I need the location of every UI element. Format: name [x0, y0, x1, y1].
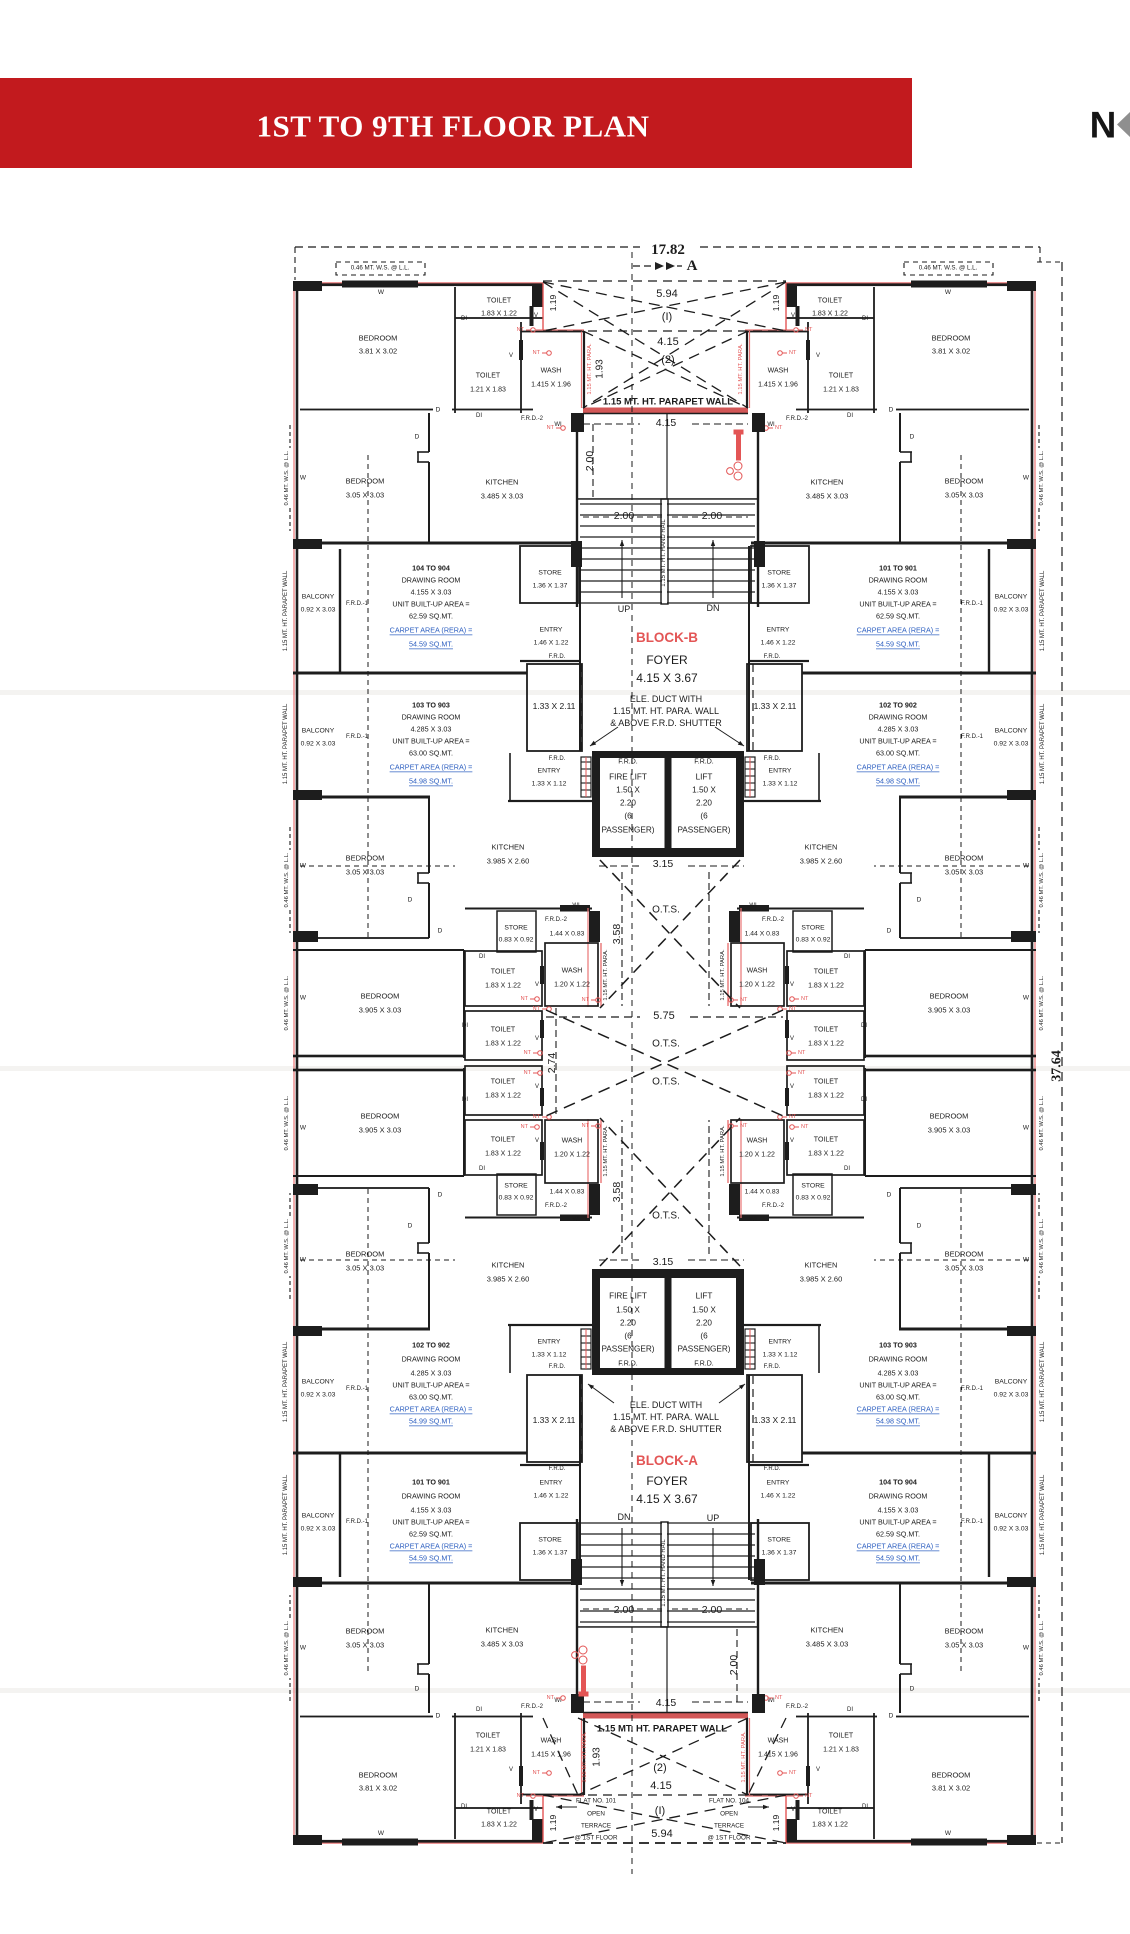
svg-text:4.15: 4.15	[656, 1697, 677, 1709]
svg-text:ELE. DUCT WITH: ELE. DUCT WITH	[630, 1400, 702, 1410]
svg-text:(I): (I)	[655, 1805, 665, 1817]
svg-text:UNIT BUILT-UP AREA =: UNIT BUILT-UP AREA =	[859, 600, 936, 609]
svg-text:1.20 X 1.22: 1.20 X 1.22	[554, 1152, 590, 1159]
svg-text:W: W	[1023, 1645, 1030, 1652]
svg-text:1.83 X 1.22: 1.83 X 1.22	[808, 1151, 844, 1158]
svg-text:1.15 MT. HT. PARA.: 1.15 MT. HT. PARA.	[587, 343, 593, 395]
svg-text:1.36 X 1.37: 1.36 X 1.37	[533, 1550, 568, 1557]
svg-text:1.33 X 2.11: 1.33 X 2.11	[533, 1415, 576, 1425]
svg-text:4.15 X 3.67: 4.15 X 3.67	[636, 1492, 698, 1506]
svg-text:1.33 X 1.12: 1.33 X 1.12	[763, 1352, 798, 1359]
svg-text:17.82: 17.82	[651, 242, 685, 258]
svg-text:BEDROOM: BEDROOM	[346, 854, 385, 863]
svg-text:2.00: 2.00	[614, 510, 635, 522]
svg-text:F.R.D.: F.R.D.	[764, 1364, 781, 1370]
svg-text:0.46 MT. W.S. @ L.L.: 0.46 MT. W.S. @ L.L.	[1039, 1620, 1045, 1675]
svg-text:F.R.D.-2: F.R.D.-2	[521, 1704, 544, 1710]
svg-text:TOILET: TOILET	[814, 969, 839, 976]
svg-text:WASH: WASH	[747, 968, 768, 975]
svg-text:2.00: 2.00	[728, 1655, 740, 1676]
svg-text:1.83 X 1.22: 1.83 X 1.22	[812, 1822, 848, 1829]
svg-text:D: D	[415, 434, 420, 441]
svg-text:FOYER: FOYER	[646, 653, 688, 667]
svg-text:63.00 SQ.MT.: 63.00 SQ.MT.	[409, 749, 453, 758]
svg-text:F.R.D.-1: F.R.D.-1	[961, 1386, 984, 1392]
svg-text:4.285 X 3.03: 4.285 X 3.03	[411, 725, 452, 734]
svg-text:STORE: STORE	[538, 1537, 562, 1544]
svg-text:TOILET: TOILET	[814, 1137, 839, 1144]
svg-text:1.93: 1.93	[595, 359, 606, 379]
svg-text:ENTRY: ENTRY	[767, 627, 790, 634]
svg-text:V: V	[534, 313, 538, 319]
svg-text:ENTRY: ENTRY	[540, 627, 563, 634]
svg-text:1.20 X 1.22: 1.20 X 1.22	[739, 982, 775, 989]
svg-text:0.83 X 0.92: 0.83 X 0.92	[499, 937, 534, 944]
svg-text:STORE: STORE	[767, 1537, 791, 1544]
svg-text:NT: NT	[798, 1050, 806, 1056]
svg-text:3.58: 3.58	[611, 924, 623, 945]
svg-text:2.20: 2.20	[696, 799, 712, 808]
svg-text:1.415 X 1.96: 1.415 X 1.96	[758, 382, 798, 389]
svg-text:W: W	[1023, 475, 1030, 482]
svg-text:WI: WI	[749, 1217, 757, 1223]
svg-text:TOILET: TOILET	[818, 1809, 843, 1816]
svg-text:(6: (6	[624, 812, 632, 821]
svg-text:54.99 SQ.MT.: 54.99 SQ.MT.	[409, 1417, 453, 1426]
svg-text:BEDROOM: BEDROOM	[346, 477, 385, 486]
svg-text:F.R.D.-2: F.R.D.-2	[545, 917, 568, 923]
svg-text:V: V	[790, 982, 794, 988]
svg-text:BEDROOM: BEDROOM	[945, 1627, 984, 1636]
svg-text:1.15 MT. HT. HAND RAIL: 1.15 MT. HT. HAND RAIL	[661, 1539, 667, 1607]
svg-text:& ABOVE F.R.D. SHUTTER: & ABOVE F.R.D. SHUTTER	[610, 1424, 722, 1434]
svg-text:62.59 SQ.MT.: 62.59 SQ.MT.	[409, 612, 453, 621]
svg-text:TOILET: TOILET	[487, 298, 512, 305]
svg-text:D: D	[889, 407, 894, 414]
svg-text:NT: NT	[775, 1695, 783, 1701]
svg-text:NT: NT	[789, 350, 797, 356]
svg-text:STORE: STORE	[504, 925, 528, 932]
svg-text:D: D	[415, 1686, 420, 1693]
svg-text:V: V	[535, 1138, 539, 1144]
svg-text:DI: DI	[479, 1166, 485, 1172]
svg-text:1.15 MT. HT. PARA. WALL: 1.15 MT. HT. PARA. WALL	[613, 706, 719, 716]
svg-text:3.05 X 3.03: 3.05 X 3.03	[346, 1641, 384, 1650]
svg-text:ENTRY: ENTRY	[769, 1339, 792, 1346]
svg-text:LIFT: LIFT	[696, 1292, 713, 1301]
svg-text:1.50 X: 1.50 X	[692, 786, 716, 795]
svg-text:BEDROOM: BEDROOM	[361, 992, 400, 1001]
svg-text:UNIT BUILT-UP AREA =: UNIT BUILT-UP AREA =	[859, 737, 936, 746]
svg-text:3.15: 3.15	[653, 858, 674, 870]
svg-text:CARPET AREA (RERA) =: CARPET AREA (RERA) =	[390, 626, 473, 635]
svg-text:V: V	[509, 1767, 513, 1773]
svg-text:0.46 MT. W.S. @ L.L.: 0.46 MT. W.S. @ L.L.	[1039, 852, 1045, 907]
svg-text:DRAWING ROOM: DRAWING ROOM	[869, 713, 928, 722]
svg-text:WASH: WASH	[562, 1138, 583, 1145]
svg-text:V: V	[535, 1036, 539, 1042]
svg-text:F.R.D.: F.R.D.	[549, 654, 566, 660]
svg-text:DI: DI	[844, 1166, 850, 1172]
svg-text:1.44 X 0.83: 1.44 X 0.83	[550, 1189, 585, 1196]
svg-text:1.83 X 1.22: 1.83 X 1.22	[812, 311, 848, 318]
svg-text:NT: NT	[533, 1114, 541, 1120]
svg-text:1.50 X: 1.50 X	[616, 786, 640, 795]
svg-text:62.59 SQ.MT.: 62.59 SQ.MT.	[876, 612, 920, 621]
svg-text:0.46 MT. W.S. @ L.L.: 0.46 MT. W.S. @ L.L.	[284, 1218, 290, 1273]
svg-text:(6: (6	[624, 1332, 632, 1341]
svg-text:NT: NT	[521, 1124, 529, 1130]
svg-text:NT: NT	[517, 327, 525, 333]
svg-text:0.92 X 3.03: 0.92 X 3.03	[994, 1392, 1029, 1399]
svg-text:D: D	[438, 1192, 443, 1199]
svg-text:V: V	[791, 1807, 795, 1813]
svg-text:1.83 X 1.22: 1.83 X 1.22	[808, 1041, 844, 1048]
svg-text:WASH: WASH	[541, 1738, 562, 1745]
svg-text:OPEN: OPEN	[587, 1811, 605, 1818]
svg-text:F.R.D.: F.R.D.	[549, 1466, 566, 1472]
svg-text:DI: DI	[479, 954, 485, 960]
svg-text:1.21 X 1.83: 1.21 X 1.83	[823, 387, 859, 394]
svg-text:WASH: WASH	[541, 368, 562, 375]
svg-text:1.19: 1.19	[771, 1814, 781, 1831]
svg-text:STORE: STORE	[767, 570, 791, 577]
svg-text:W: W	[945, 289, 952, 296]
svg-text:1.46 X 1.22: 1.46 X 1.22	[761, 1493, 796, 1500]
svg-text:1.15 MT. HT. HAND RAIL: 1.15 MT. HT. HAND RAIL	[661, 519, 667, 587]
svg-text:63.00 SQ.MT.: 63.00 SQ.MT.	[876, 1393, 920, 1402]
svg-text:1.15 MT. HT. PARAPET WALL: 1.15 MT. HT. PARAPET WALL	[597, 1724, 727, 1735]
svg-text:FOYER: FOYER	[646, 1474, 688, 1488]
svg-text:1.83 X 1.22: 1.83 X 1.22	[485, 1151, 521, 1158]
svg-text:NT: NT	[533, 1006, 541, 1012]
svg-text:F.R.D.-1: F.R.D.-1	[961, 1519, 984, 1525]
svg-text:& ABOVE F.R.D. SHUTTER: & ABOVE F.R.D. SHUTTER	[610, 718, 722, 728]
svg-text:ENTRY: ENTRY	[769, 768, 792, 775]
svg-text:4.15: 4.15	[650, 1780, 671, 1792]
svg-text:@ 1ST FLOOR: @ 1ST FLOOR	[707, 1835, 750, 1842]
svg-text:4.155 X 3.03: 4.155 X 3.03	[878, 588, 919, 597]
svg-text:DRAWING ROOM: DRAWING ROOM	[869, 1355, 928, 1364]
svg-text:F.R.D.: F.R.D.	[549, 1364, 566, 1370]
svg-text:PASSENGER): PASSENGER)	[601, 826, 654, 835]
svg-text:3.81 X 3.02: 3.81 X 3.02	[932, 347, 970, 356]
svg-text:TOILET: TOILET	[476, 373, 501, 380]
svg-text:D: D	[438, 928, 443, 935]
svg-text:54.59 SQ.MT.: 54.59 SQ.MT.	[876, 640, 920, 649]
svg-text:TOILET: TOILET	[491, 1079, 516, 1086]
svg-text:1.36 X 1.37: 1.36 X 1.37	[762, 1550, 797, 1557]
svg-text:DI: DI	[476, 1707, 482, 1713]
svg-text:NT: NT	[798, 1070, 806, 1076]
svg-text:4.155 X 3.03: 4.155 X 3.03	[411, 588, 452, 597]
svg-text:O.T.S.: O.T.S.	[652, 905, 680, 916]
svg-text:DRAWING ROOM: DRAWING ROOM	[402, 713, 461, 722]
svg-text:0.46 MT. W.S. @ L.L.: 0.46 MT. W.S. @ L.L.	[1039, 1218, 1045, 1273]
svg-text:1.15 MT. HT. PARA.: 1.15 MT. HT. PARA.	[603, 949, 609, 1001]
svg-text:BALCONY: BALCONY	[302, 594, 335, 601]
svg-text:2.74: 2.74	[546, 1053, 558, 1074]
svg-text:V: V	[790, 1084, 794, 1090]
svg-text:V: V	[534, 1807, 538, 1813]
svg-text:F.R.D.-2: F.R.D.-2	[521, 416, 544, 422]
svg-text:1.15 MT. HT. PARA. WALL: 1.15 MT. HT. PARA. WALL	[613, 1412, 719, 1422]
svg-text:(6: (6	[700, 812, 708, 821]
svg-text:CARPET AREA (RERA) =: CARPET AREA (RERA) =	[857, 1542, 940, 1551]
svg-text:54.98 SQ.MT.: 54.98 SQ.MT.	[409, 777, 453, 786]
svg-text:3.485 X 3.03: 3.485 X 3.03	[806, 1640, 849, 1649]
svg-text:V: V	[535, 982, 539, 988]
svg-text:3.985 X 2.60: 3.985 X 2.60	[487, 1275, 530, 1284]
svg-text:D: D	[910, 434, 915, 441]
svg-text:F.R.D.-1: F.R.D.-1	[346, 1386, 369, 1392]
svg-text:F.R.D.: F.R.D.	[694, 759, 714, 766]
svg-text:TOILET: TOILET	[491, 1027, 516, 1034]
svg-text:UNIT BUILT-UP AREA =: UNIT BUILT-UP AREA =	[392, 737, 469, 746]
svg-text:BALCONY: BALCONY	[302, 728, 335, 735]
svg-text:KITCHEN: KITCHEN	[492, 1261, 525, 1270]
svg-text:F.R.D.: F.R.D.	[618, 1361, 638, 1368]
svg-text:TERRACE: TERRACE	[714, 1823, 744, 1830]
svg-text:3.985 X 2.60: 3.985 X 2.60	[487, 857, 530, 866]
svg-text:DI: DI	[462, 1097, 468, 1103]
svg-text:NT: NT	[533, 350, 541, 356]
svg-text:NT: NT	[805, 1793, 813, 1799]
svg-text:37.64: 37.64	[1050, 1050, 1065, 1082]
svg-text:0.83 X 0.92: 0.83 X 0.92	[796, 937, 831, 944]
svg-text:1.93: 1.93	[592, 1747, 603, 1767]
svg-text:D: D	[917, 897, 922, 904]
svg-text:3.81 X 3.02: 3.81 X 3.02	[932, 1784, 970, 1793]
svg-text:3.58: 3.58	[611, 1182, 623, 1203]
svg-text:UNIT BUILT-UP AREA =: UNIT BUILT-UP AREA =	[392, 1381, 469, 1390]
svg-text:2.20: 2.20	[620, 799, 636, 808]
svg-text:BEDROOM: BEDROOM	[346, 1627, 385, 1636]
svg-text:V: V	[509, 353, 513, 359]
svg-text:(2): (2)	[661, 354, 674, 366]
svg-text:W: W	[378, 1830, 385, 1837]
svg-text:BEDROOM: BEDROOM	[346, 1250, 385, 1259]
svg-text:TOILET: TOILET	[491, 969, 516, 976]
svg-text:DN: DN	[618, 1512, 631, 1522]
svg-text:1.15 MT. HT. PARAPET WALL: 1.15 MT. HT. PARAPET WALL	[1040, 570, 1046, 651]
svg-text:1.21 X 1.83: 1.21 X 1.83	[470, 387, 506, 394]
svg-text:54.59 SQ.MT.: 54.59 SQ.MT.	[409, 640, 453, 649]
svg-text:F.R.D.-2: F.R.D.-2	[762, 1203, 785, 1209]
svg-text:F.R.D.-1: F.R.D.-1	[346, 1519, 369, 1525]
svg-text:TOILET: TOILET	[487, 1809, 512, 1816]
svg-text:DI: DI	[847, 413, 853, 419]
svg-text:W: W	[300, 475, 307, 482]
svg-text:1.15 MT. HT. PARA.: 1.15 MT. HT. PARA.	[738, 343, 744, 395]
svg-text:F.R.D.-2: F.R.D.-2	[786, 416, 809, 422]
svg-text:2.00: 2.00	[702, 1604, 723, 1616]
svg-text:54.59 SQ.MT.: 54.59 SQ.MT.	[409, 1554, 453, 1563]
svg-text:5.94: 5.94	[651, 1828, 672, 1840]
svg-text:DI: DI	[862, 316, 868, 322]
svg-text:0.46 MT. W.S. @ L.L.: 0.46 MT. W.S. @ L.L.	[1039, 975, 1045, 1030]
svg-text:CARPET AREA (RERA) =: CARPET AREA (RERA) =	[857, 763, 940, 772]
svg-text:STORE: STORE	[801, 1183, 825, 1190]
svg-text:5.94: 5.94	[656, 288, 677, 300]
svg-text:D: D	[910, 1686, 915, 1693]
svg-text:UNIT BUILT-UP AREA =: UNIT BUILT-UP AREA =	[859, 1381, 936, 1390]
svg-text:3.905 X 3.03: 3.905 X 3.03	[359, 1006, 402, 1015]
svg-text:V: V	[790, 1036, 794, 1042]
svg-text:0.46 MT. W.S. @ L.L.: 0.46 MT. W.S. @ L.L.	[284, 450, 290, 505]
svg-text:OPEN: OPEN	[720, 1811, 738, 1818]
svg-text:1.46 X 1.22: 1.46 X 1.22	[534, 1493, 569, 1500]
svg-text:1.46 X 1.22: 1.46 X 1.22	[534, 640, 569, 647]
svg-text:TOILET: TOILET	[814, 1079, 839, 1086]
svg-text:0.46 MT. W.S. @ L.L.: 0.46 MT. W.S. @ L.L.	[284, 1095, 290, 1150]
svg-text:1.83 X 1.22: 1.83 X 1.22	[485, 983, 521, 990]
svg-text:DRAWING ROOM: DRAWING ROOM	[869, 576, 928, 585]
svg-text:3.985 X 2.60: 3.985 X 2.60	[800, 1275, 843, 1284]
svg-text:0.92 X 3.03: 0.92 X 3.03	[994, 1526, 1029, 1533]
svg-text:1.36 X 1.37: 1.36 X 1.37	[762, 583, 797, 590]
svg-text:W: W	[1023, 1125, 1030, 1132]
svg-text:1.15 MT. HT. PARA.: 1.15 MT. HT. PARA.	[582, 1731, 588, 1783]
svg-text:TOILET: TOILET	[818, 298, 843, 305]
svg-text:CARPET AREA (RERA) =: CARPET AREA (RERA) =	[857, 1405, 940, 1414]
svg-text:1.15 MT. HT. PARAPET WALL: 1.15 MT. HT. PARAPET WALL	[603, 397, 733, 408]
svg-text:KITCHEN: KITCHEN	[805, 1261, 838, 1270]
svg-text:2.00: 2.00	[584, 451, 596, 472]
svg-text:101 TO 901: 101 TO 901	[879, 564, 917, 573]
svg-text:UNIT BUILT-UP AREA =: UNIT BUILT-UP AREA =	[392, 1518, 469, 1527]
svg-text:F.R.D.: F.R.D.	[694, 1361, 714, 1368]
svg-text:DI: DI	[844, 954, 850, 960]
svg-text:1.15 MT. HT. PARAPET WALL: 1.15 MT. HT. PARAPET WALL	[1040, 1341, 1046, 1422]
svg-text:(6: (6	[700, 1332, 708, 1341]
svg-text:F.R.D.-1: F.R.D.-1	[961, 734, 984, 740]
svg-text:F.R.D.: F.R.D.	[764, 756, 781, 762]
svg-text:3.05 X 3.03: 3.05 X 3.03	[346, 868, 384, 877]
svg-text:54.98 SQ.MT.: 54.98 SQ.MT.	[876, 777, 920, 786]
svg-text:UP: UP	[707, 1513, 720, 1523]
svg-text:NT: NT	[775, 425, 783, 431]
svg-text:W: W	[945, 1830, 952, 1837]
svg-text:2.20: 2.20	[696, 1319, 712, 1328]
svg-text:NT: NT	[740, 1123, 748, 1129]
svg-text:0.46 MT. W.S. @ L.L.: 0.46 MT. W.S. @ L.L.	[919, 265, 978, 272]
svg-text:DRAWING ROOM: DRAWING ROOM	[402, 1492, 461, 1501]
svg-text:1.33 X 1.12: 1.33 X 1.12	[763, 781, 798, 788]
svg-text:WI: WI	[572, 1217, 580, 1223]
svg-text:UNIT BUILT-UP AREA =: UNIT BUILT-UP AREA =	[859, 1518, 936, 1527]
svg-text:BLOCK-A: BLOCK-A	[636, 1452, 698, 1468]
svg-text:BALCONY: BALCONY	[995, 594, 1028, 601]
svg-text:F.R.D.: F.R.D.	[764, 1466, 781, 1472]
svg-text:O.T.S.: O.T.S.	[652, 1211, 680, 1222]
svg-text:BALCONY: BALCONY	[302, 1379, 335, 1386]
svg-text:3.905 X 3.03: 3.905 X 3.03	[359, 1126, 402, 1135]
svg-text:3.81 X 3.02: 3.81 X 3.02	[359, 347, 397, 356]
svg-text:TERRACE: TERRACE	[581, 1823, 611, 1830]
svg-text:3.05 X 3.03: 3.05 X 3.03	[346, 1264, 384, 1273]
svg-text:BEDROOM: BEDROOM	[945, 477, 984, 486]
svg-text:1.19: 1.19	[771, 294, 781, 311]
svg-text:DI: DI	[476, 413, 482, 419]
svg-text:62.59 SQ.MT.: 62.59 SQ.MT.	[409, 1530, 453, 1539]
svg-text:1.83 X 1.22: 1.83 X 1.22	[808, 1093, 844, 1100]
svg-text:1.415 X 1.96: 1.415 X 1.96	[531, 382, 571, 389]
svg-text:NT: NT	[789, 1770, 797, 1776]
svg-text:103 TO 903: 103 TO 903	[412, 701, 450, 710]
svg-text:D: D	[436, 1713, 441, 1720]
svg-text:1.15 MT. HT. PARA.: 1.15 MT. HT. PARA.	[603, 1125, 609, 1177]
svg-text:NT: NT	[801, 1124, 809, 1130]
svg-text:BEDROOM: BEDROOM	[359, 334, 398, 343]
svg-text:WI: WI	[749, 903, 757, 909]
svg-text:BEDROOM: BEDROOM	[359, 1771, 398, 1780]
svg-text:KITCHEN: KITCHEN	[486, 1626, 519, 1635]
svg-text:F.R.D.: F.R.D.	[618, 759, 638, 766]
svg-text:4.285 X 3.03: 4.285 X 3.03	[878, 1369, 919, 1378]
svg-text:ENTRY: ENTRY	[767, 1480, 790, 1487]
svg-text:3.81 X 3.02: 3.81 X 3.02	[359, 1784, 397, 1793]
svg-text:NT: NT	[547, 1695, 555, 1701]
svg-text:D: D	[436, 407, 441, 414]
svg-text:F.R.D.-1: F.R.D.-1	[961, 601, 984, 607]
svg-text:63.00 SQ.MT.: 63.00 SQ.MT.	[409, 1393, 453, 1402]
svg-text:BALCONY: BALCONY	[995, 1379, 1028, 1386]
svg-text:BEDROOM: BEDROOM	[945, 854, 984, 863]
svg-text:1.33 X 2.11: 1.33 X 2.11	[533, 701, 576, 711]
svg-text:0.46 MT. W.S. @ L.L.: 0.46 MT. W.S. @ L.L.	[1039, 1095, 1045, 1150]
svg-text:D: D	[887, 928, 892, 935]
svg-text:0.83 X 0.92: 0.83 X 0.92	[499, 1195, 534, 1202]
svg-text:W: W	[1023, 995, 1030, 1002]
svg-text:KITCHEN: KITCHEN	[492, 843, 525, 852]
svg-text:0.92 X 3.03: 0.92 X 3.03	[301, 1526, 336, 1533]
svg-text:0.46 MT. W.S. @ L.L.: 0.46 MT. W.S. @ L.L.	[1039, 450, 1045, 505]
svg-text:BEDROOM: BEDROOM	[932, 1771, 971, 1780]
svg-text:0.46 MT. W.S. @ L.L.: 0.46 MT. W.S. @ L.L.	[284, 975, 290, 1030]
svg-text:1.415 X 1.96: 1.415 X 1.96	[531, 1752, 571, 1759]
svg-text:0.92 X 3.03: 0.92 X 3.03	[994, 741, 1029, 748]
svg-text:4.285 X 3.03: 4.285 X 3.03	[411, 1369, 452, 1378]
svg-text:1.44 X 0.83: 1.44 X 0.83	[550, 931, 585, 938]
svg-text:3.05 X 3.03: 3.05 X 3.03	[945, 868, 983, 877]
svg-text:W: W	[378, 289, 385, 296]
svg-text:TOILET: TOILET	[814, 1027, 839, 1034]
svg-text:KITCHEN: KITCHEN	[811, 1626, 844, 1635]
svg-text:1.50 X: 1.50 X	[692, 1306, 716, 1315]
svg-text:DN: DN	[707, 603, 720, 613]
svg-text:3.485 X 3.03: 3.485 X 3.03	[481, 1640, 524, 1649]
svg-text:1.15 MT. HT. PARAPET WALL: 1.15 MT. HT. PARAPET WALL	[1040, 703, 1046, 784]
svg-text:D: D	[408, 1223, 413, 1230]
svg-text:WASH: WASH	[768, 368, 789, 375]
svg-text:BEDROOM: BEDROOM	[945, 1250, 984, 1259]
svg-text:D: D	[917, 1223, 922, 1230]
svg-text:NT: NT	[521, 996, 529, 1002]
svg-text:3.485 X 3.03: 3.485 X 3.03	[481, 492, 524, 501]
svg-text:0.46 MT. W.S. @ L.L.: 0.46 MT. W.S. @ L.L.	[351, 265, 410, 272]
svg-text:0.46 MT. W.S. @ L.L.: 0.46 MT. W.S. @ L.L.	[284, 1620, 290, 1675]
svg-text:101 TO 901: 101 TO 901	[412, 1478, 450, 1487]
svg-text:ENTRY: ENTRY	[538, 1339, 561, 1346]
svg-text:1.44 X 0.83: 1.44 X 0.83	[745, 1189, 780, 1196]
svg-text:CARPET AREA (RERA) =: CARPET AREA (RERA) =	[390, 1542, 473, 1551]
svg-text:V: V	[816, 353, 820, 359]
svg-text:5.75: 5.75	[653, 1010, 674, 1022]
svg-text:NT: NT	[801, 996, 809, 1002]
svg-text:1.15 MT. HT. PARAPET WALL: 1.15 MT. HT. PARAPET WALL	[283, 1341, 289, 1422]
svg-text:1.33 X 1.12: 1.33 X 1.12	[532, 1352, 567, 1359]
